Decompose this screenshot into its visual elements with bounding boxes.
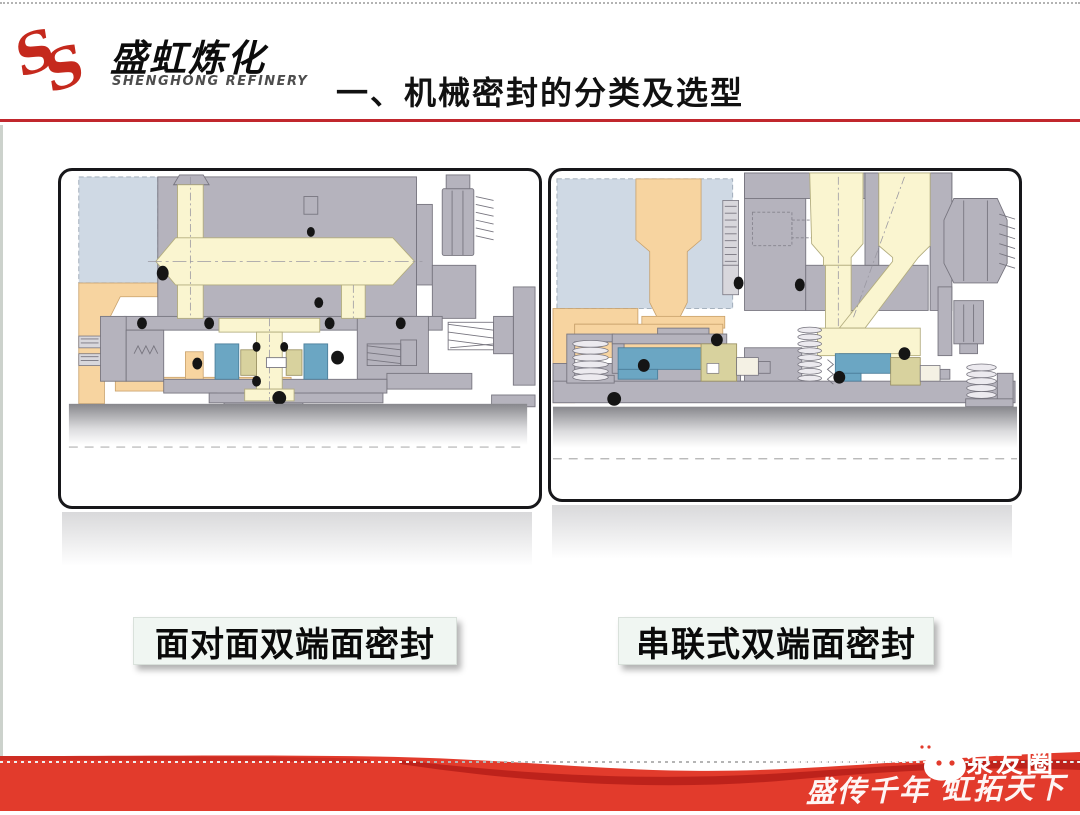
slide-root: { "header": { "logo_cn": "盛虹炼化", "logo_e… [0, 0, 1080, 811]
page-title: 一、机械密封的分类及选型 [0, 68, 1080, 114]
panel-reflection-right [552, 505, 1012, 577]
caption-face-to-face: 面对面双端面密封 [133, 617, 457, 665]
figure-panel-face-to-face [58, 168, 542, 509]
panel-reflection-left [62, 512, 532, 584]
footer-band: 泵友圈 盛传千年 虹拓天下 [0, 730, 1080, 811]
footer-slogan: 盛传千年 虹拓天下 [806, 770, 1070, 809]
caption-tandem: 串联式双端面密封 [618, 617, 934, 665]
slide-left-edge-strip [0, 125, 3, 793]
footer-red-wave: 泵友圈 盛传千年 虹拓天下 [0, 730, 1080, 811]
tandem-seal-diagram [551, 171, 1019, 499]
pump-shaft [553, 407, 1017, 459]
pump-shaft [69, 404, 527, 447]
stuffing-box-wall [79, 177, 158, 283]
slide-top-dotted-edge [0, 2, 1080, 4]
header-red-rule [0, 119, 1080, 122]
figure-panel-tandem [548, 168, 1022, 502]
face-to-face-seal-diagram [61, 171, 539, 506]
